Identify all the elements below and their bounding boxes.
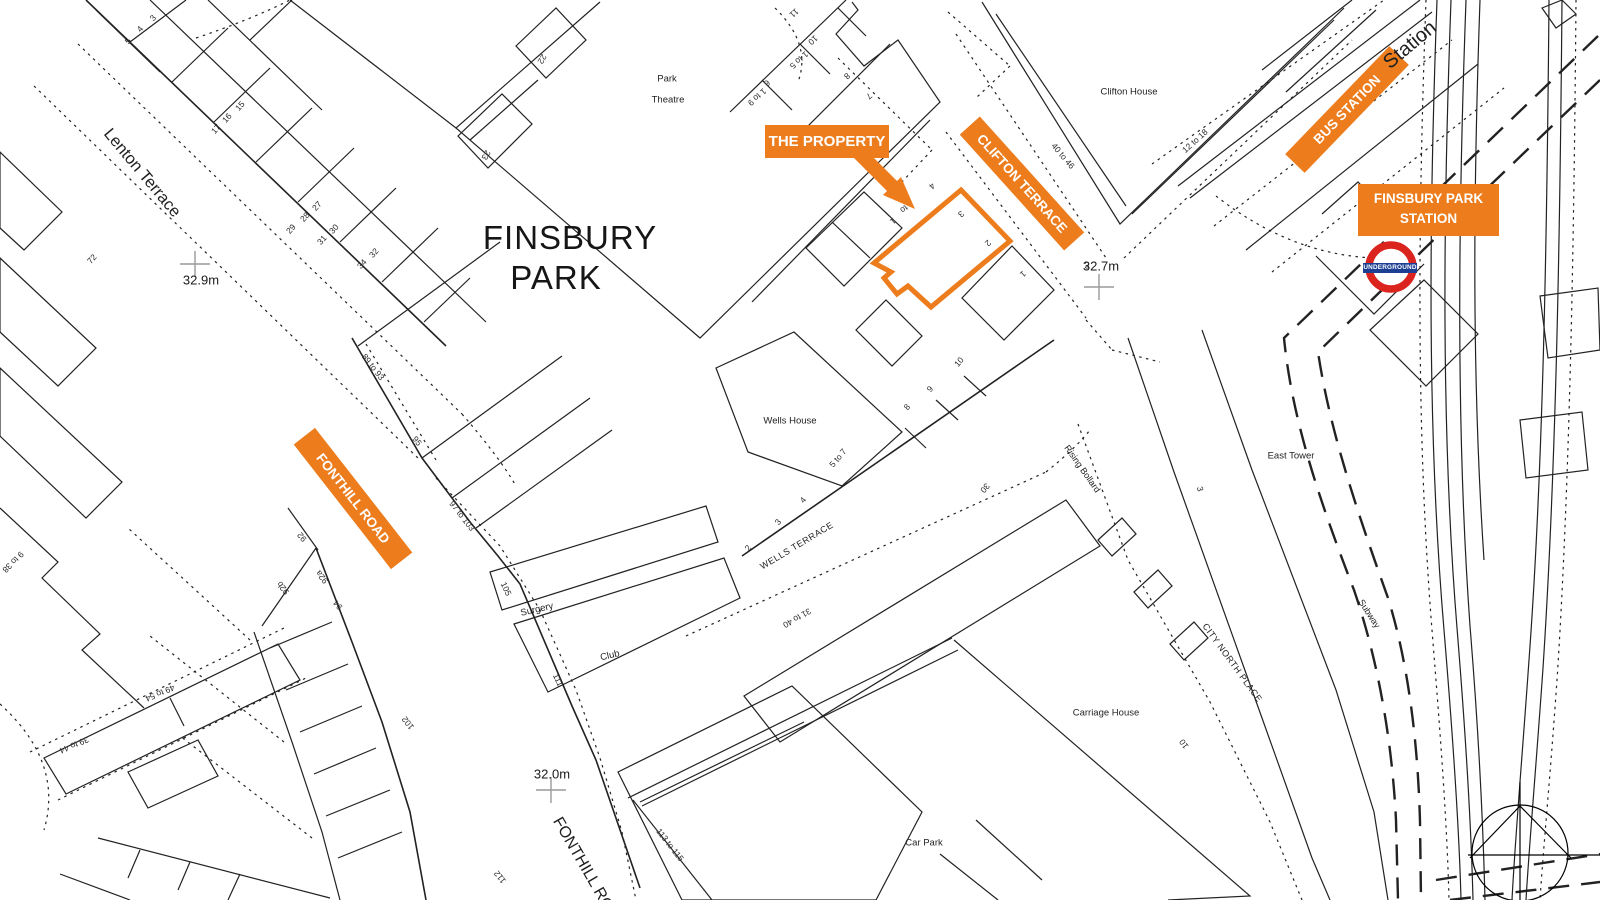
left-edge-buildings <box>0 152 144 830</box>
area-title-park: PARK <box>510 259 601 297</box>
callout-fps-line2: STATION <box>1358 209 1499 229</box>
spot-height-32-0m: 32.0m <box>534 768 570 781</box>
fonthill-east-buildings <box>352 242 922 900</box>
building-label-carriage-house: Carriage House <box>1073 708 1140 718</box>
underground-roundel-icon: UNDERGROUND <box>1357 240 1427 296</box>
house-number: 3 <box>1084 262 1089 271</box>
building-label-park-theatre-2: Theatre <box>652 95 685 105</box>
area-label-car-park: Car Park <box>905 838 942 848</box>
building-label-clifton-house: Clifton House <box>1100 87 1157 97</box>
railway-lines <box>1420 0 1576 900</box>
spot-height-32-9m: 32.9m <box>183 274 219 287</box>
callout-the-property: THE PROPERTY <box>765 125 889 158</box>
site-location-map: FINSBURY PARK THE PROPERTY CLIFTON TERRA… <box>0 0 1600 900</box>
spot-height-crosses <box>180 251 1114 803</box>
callout-fps-line1: FINSBURY PARK <box>1358 189 1499 209</box>
area-title-finsbury: FINSBURY <box>483 219 657 257</box>
city-north-place <box>1078 330 1388 900</box>
bottom-left-buildings <box>30 628 330 900</box>
building-label-park-theatre-1: Park <box>657 74 677 84</box>
building-label-east-tower: East Tower <box>1268 451 1315 461</box>
property-highlight <box>853 147 1010 307</box>
building-label-wells-house: Wells House <box>763 416 816 426</box>
roundel-bar: UNDERGROUND <box>1363 263 1417 273</box>
north-arrow-symbol <box>1468 782 1600 900</box>
clifton-house-building <box>956 2 1352 258</box>
station-buildings <box>1316 0 1600 478</box>
callout-finsbury-park-station: FINSBURY PARK STATION <box>1358 184 1499 236</box>
